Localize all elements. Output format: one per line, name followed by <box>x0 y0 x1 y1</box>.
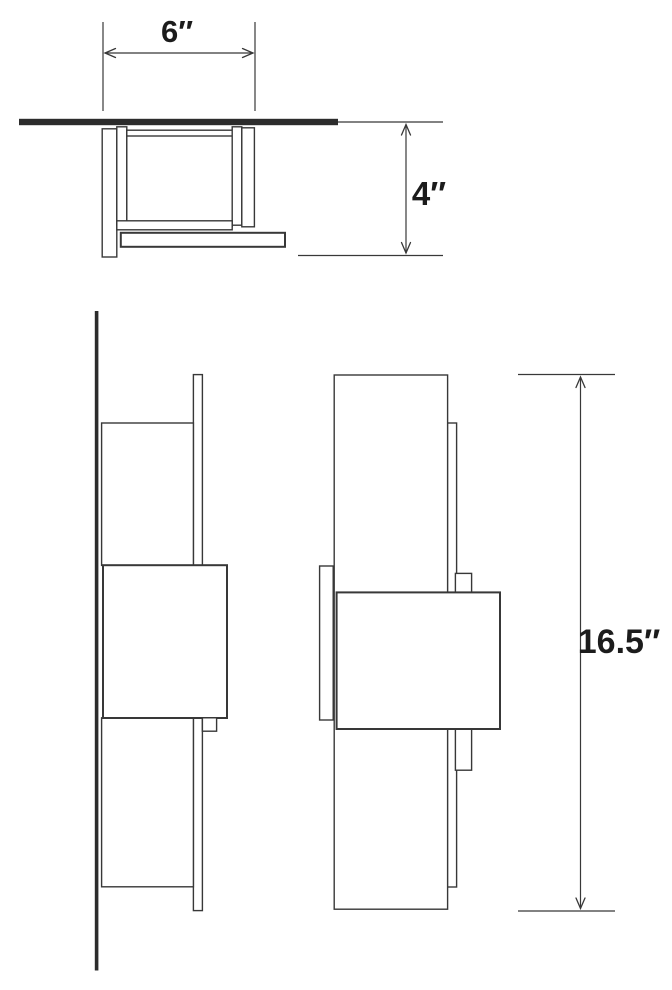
height-dim-label: 16.5″ <box>578 623 660 661</box>
mount-tab-upper-front <box>455 573 471 593</box>
diffuser-lower-side <box>102 718 194 887</box>
band-front-view <box>337 592 500 729</box>
mount-tab-lower-front <box>455 729 471 771</box>
side-view <box>95 311 227 971</box>
glass-panel-plan <box>127 130 232 226</box>
backplate-edge-left-front <box>320 566 334 720</box>
depth-dim-label: 4″ <box>412 175 446 212</box>
height-dimension: 16.5″ <box>518 375 660 912</box>
top-view: 6″ 4″ <box>19 14 446 257</box>
band-plan-view <box>121 233 285 247</box>
backplate-left-edge <box>102 129 117 257</box>
front-view <box>320 375 500 909</box>
backplate-right-edge <box>242 128 255 227</box>
wall-line <box>95 311 99 971</box>
sconce-dimension-diagram: 6″ 4″ <box>0 0 672 990</box>
band-side-view <box>103 565 227 718</box>
glass-left-edge <box>117 127 127 225</box>
depth-dimension: 4″ <box>298 122 446 256</box>
glass-right-edge <box>232 127 242 225</box>
glass-bottom-edge-strip <box>117 221 232 230</box>
mount-tab-side <box>202 718 216 731</box>
diffuser-upper-side <box>102 423 194 565</box>
width-dim-label: 6″ <box>161 14 193 49</box>
wall-section-bar <box>19 119 338 125</box>
width-dimension: 6″ <box>103 14 255 111</box>
glass-top-edge-strip <box>127 130 232 136</box>
diagram-svg: 6″ 4″ <box>0 0 672 990</box>
